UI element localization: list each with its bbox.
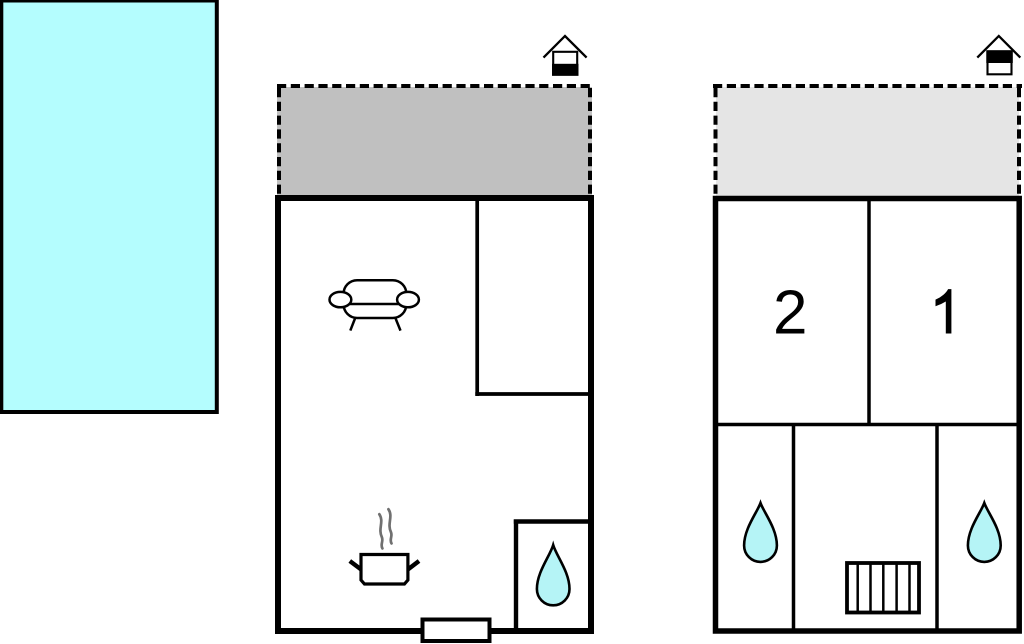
svg-text:2: 2 bbox=[773, 279, 807, 348]
